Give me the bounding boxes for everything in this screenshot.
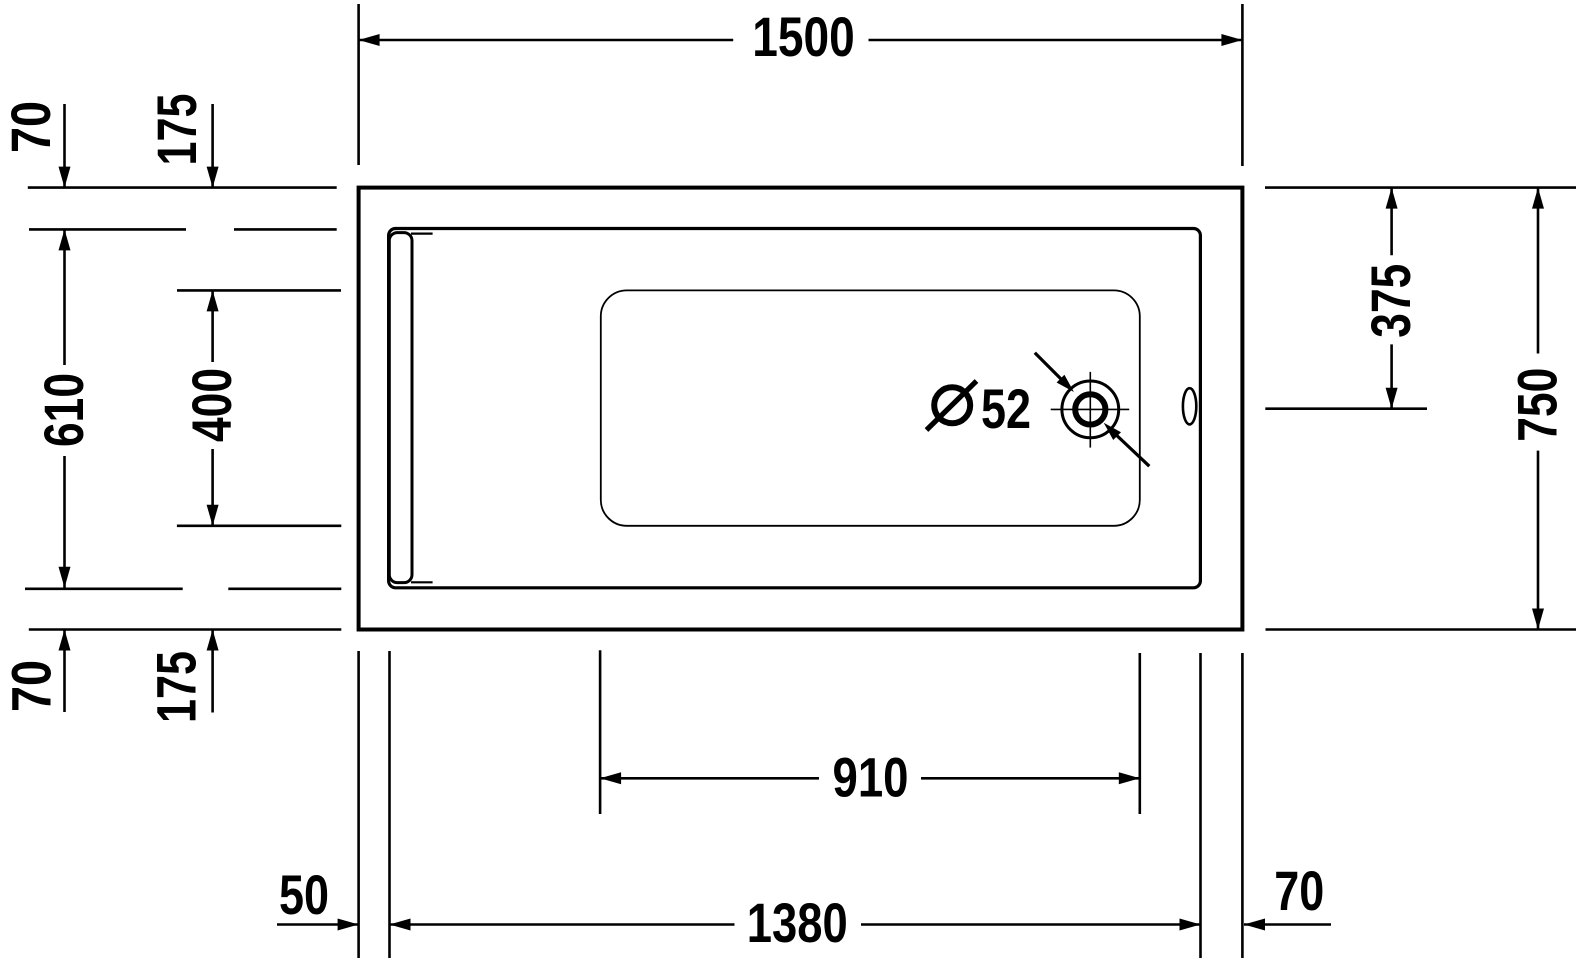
svg-text:910: 910 bbox=[833, 747, 909, 809]
svg-text:175: 175 bbox=[146, 94, 208, 166]
svg-text:400: 400 bbox=[181, 368, 243, 442]
svg-text:70: 70 bbox=[1, 660, 63, 712]
svg-text:50: 50 bbox=[279, 864, 329, 926]
svg-text:70: 70 bbox=[0, 101, 62, 153]
svg-text:610: 610 bbox=[33, 373, 95, 447]
svg-text:375: 375 bbox=[1360, 264, 1422, 338]
svg-text:70: 70 bbox=[1274, 860, 1324, 922]
svg-text:52: 52 bbox=[981, 378, 1031, 440]
svg-text:1380: 1380 bbox=[747, 892, 848, 954]
svg-text:1500: 1500 bbox=[752, 6, 855, 68]
svg-text:175: 175 bbox=[146, 651, 208, 723]
svg-text:750: 750 bbox=[1507, 368, 1569, 442]
